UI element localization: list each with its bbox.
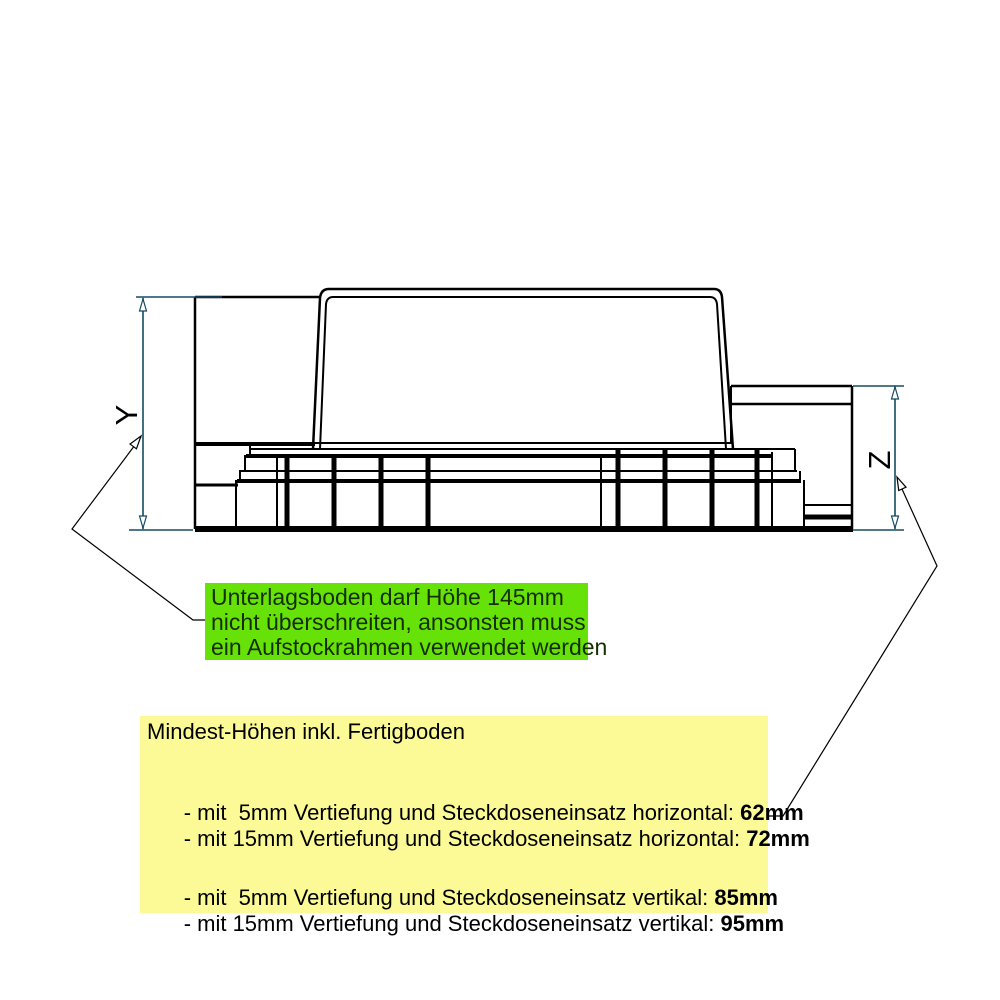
note-row-value: 95mm xyxy=(721,911,785,936)
minimum-heights-note: Mindest-Höhen inkl. Fertigboden - mit 5m… xyxy=(140,716,768,913)
dimension-arrow-icon xyxy=(140,299,147,311)
dimension-arrow-icon xyxy=(892,516,899,528)
note-title: Mindest-Höhen inkl. Fertigboden xyxy=(147,720,465,744)
left-frame xyxy=(195,297,319,529)
leader-to-warning-note xyxy=(72,434,206,620)
warning-line: nicht überschreiten, ansonsten muss xyxy=(211,610,586,634)
note-row-value: 72mm xyxy=(746,826,810,851)
note-row-text: - mit 15mm Vertiefung und Steckdoseneins… xyxy=(184,826,747,851)
cover-lid xyxy=(313,289,733,449)
ribbed-base xyxy=(195,445,853,529)
drawing-canvas: Y Z Unterlagsboden darf Höhe 145mm nicht… xyxy=(0,0,1000,1000)
warning-line: ein Aufstockrahmen verwendet werden xyxy=(211,635,607,659)
dimension-arrow-icon xyxy=(140,516,147,528)
leader-arrow-icon xyxy=(130,434,144,449)
dimension-label-z: Z xyxy=(860,440,900,480)
note-row-text: - mit 15mm Vertiefung und Steckdoseneins… xyxy=(184,911,721,936)
dimension-arrow-icon xyxy=(892,387,899,399)
warning-line: Unterlagsboden darf Höhe 145mm xyxy=(211,585,564,609)
height-warning-note: Unterlagsboden darf Höhe 145mm nicht übe… xyxy=(205,583,588,660)
note-row: - mit 15mm Vertiefung und Steckdoseneins… xyxy=(147,888,784,960)
dimension-label-y: Y xyxy=(107,395,147,435)
